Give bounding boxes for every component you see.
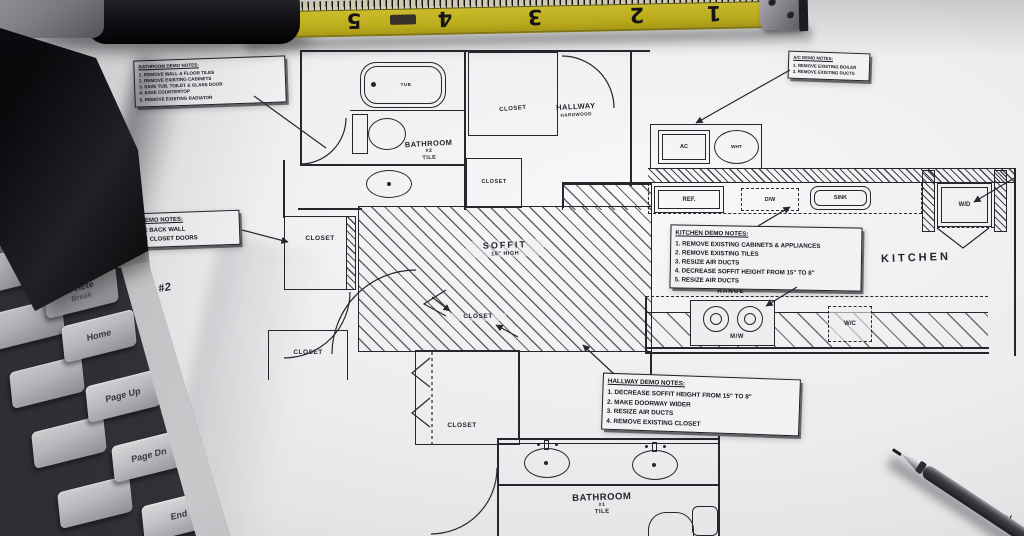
tape-end-clip — [759, 0, 802, 30]
tape-number: 1 — [703, 1, 725, 25]
bifold-door-symbol — [412, 398, 430, 427]
leader-arrow — [583, 345, 614, 374]
tape-number: 4 — [434, 7, 456, 31]
door-arc — [431, 468, 497, 534]
bifold-door-symbol — [424, 290, 446, 316]
leader-arrow — [758, 207, 790, 226]
tape-number: 5 — [343, 8, 365, 32]
leader-line — [254, 96, 326, 148]
rivet — [786, 10, 794, 18]
door-arc — [284, 292, 350, 358]
tape-case-body — [86, 0, 300, 44]
tape-end-hook — [798, 0, 808, 31]
wd-door-swing — [937, 228, 989, 248]
tape-logo-chip — [390, 14, 416, 25]
door-arc — [562, 56, 614, 108]
photo-of-floor-plan: TUB REF. D/W SINK — [0, 0, 1024, 536]
tape-number: 3 — [524, 5, 546, 29]
bifold-door-symbol — [412, 358, 430, 387]
tape-case-clip — [0, 0, 104, 38]
door-arc — [332, 270, 416, 354]
leader-arrow — [432, 297, 450, 311]
leader-arrow — [496, 325, 518, 337]
rivet — [768, 0, 776, 6]
pencil-lead — [892, 448, 902, 456]
leader-arrow — [242, 230, 288, 242]
leader-arrow — [696, 70, 790, 123]
tape-number: 2 — [626, 2, 648, 26]
door-arc — [300, 118, 346, 164]
leader-arrow — [766, 287, 797, 306]
leader-arrow — [974, 177, 1016, 202]
